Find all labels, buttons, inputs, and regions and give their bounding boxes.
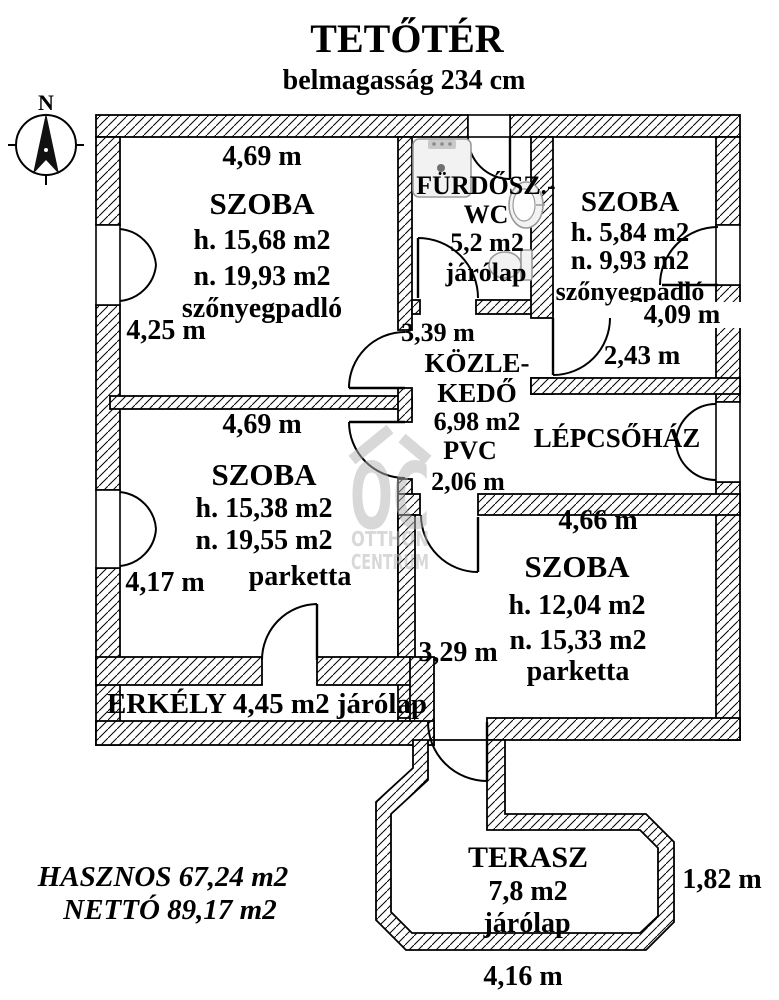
szoba4-dim-top: 4,66 m <box>558 505 637 536</box>
compass-north-label: N <box>38 90 54 115</box>
szoba1-dim-top: 4,69 m <box>222 141 301 172</box>
watermark-line1: OTTHON <box>351 527 429 551</box>
terasz-floor: járólap <box>482 908 570 939</box>
kozlekedo-name1: KÖZLE- <box>424 348 529 378</box>
szoba4-area-h: h. 12,04 m2 <box>509 590 646 621</box>
szoba2-dim-right: 4,09 m <box>644 299 721 329</box>
szoba3-name: SZOBA <box>211 457 317 492</box>
kozlekedo-floor: PVC <box>443 436 496 465</box>
szoba1-name: SZOBA <box>209 186 315 221</box>
szoba4-floor: parketta <box>527 656 630 687</box>
bathroom-floor: járólap <box>445 258 527 287</box>
watermark-logo: OC OTTHON CENTRUM <box>350 429 430 574</box>
bathroom-name2: WC <box>464 200 509 229</box>
kozlekedo-dim-bottom: 2,06 m <box>431 467 505 496</box>
window-szoba1 <box>96 225 120 305</box>
szoba1-area-n: n. 19,93 m2 <box>194 261 331 292</box>
terasz-area: 7,8 m2 <box>488 876 567 907</box>
summary-hasznos: HASZNOS 67,24 m2 <box>37 861 289 893</box>
terasz-dim-bottom: 4,16 m <box>483 961 562 992</box>
floor-plan: OC OTTHON CENTRUM N TETŐTÉR belmagasság … <box>0 0 779 1000</box>
szoba3-dim-top: 4,69 m <box>222 409 301 440</box>
szoba1-area-h: h. 15,68 m2 <box>194 225 331 256</box>
door-szoba2-right <box>716 225 740 285</box>
szoba3-area-h: h. 15,38 m2 <box>196 493 333 524</box>
bathroom-name1: FÜRDŐSZ.- <box>416 171 555 200</box>
szoba2-area-h: h. 5,84 m2 <box>571 217 690 247</box>
summary-netto: NETTÓ 89,17 m2 <box>62 893 276 926</box>
terasz-name: TERASZ <box>468 841 588 874</box>
window-szoba3 <box>96 490 120 568</box>
szoba3-area-n: n. 19,55 m2 <box>196 525 333 556</box>
szoba1-floor: szőnyegpadló <box>182 293 342 324</box>
szoba2-dim-bottom: 2,43 m <box>604 340 681 370</box>
door-bathroom-top <box>468 115 510 137</box>
page-subtitle: belmagasság 234 cm <box>283 65 526 96</box>
szoba3-floor: parketta <box>249 561 352 592</box>
szoba4-area-n: n. 15,33 m2 <box>510 625 647 656</box>
kozlekedo-name2: KEDŐ <box>437 377 517 408</box>
door-lepcsohaz <box>716 402 740 482</box>
kozlekedo-dim-top: 3,39 m <box>401 318 475 347</box>
kozlekedo-area: 6,98 m2 <box>434 407 521 436</box>
bathroom-area: 5,2 m2 <box>450 228 524 257</box>
szoba3-dim-left: 4,17 m <box>125 567 204 598</box>
szoba1-dim-left: 4,25 m <box>126 315 205 346</box>
erkely-label: ERKÉLY 4,45 m2 járólap <box>107 687 427 720</box>
terasz-dim-right: 1,82 m <box>682 864 761 895</box>
szoba2-name: SZOBA <box>581 186 679 218</box>
szoba4-name: SZOBA <box>524 549 630 584</box>
lepcsohaz-name: LÉPCSŐHÁZ <box>534 422 701 453</box>
watermark-line2: CENTRUM <box>351 550 429 574</box>
szoba2-area-n: n. 9,93 m2 <box>571 245 690 275</box>
page-title: TETŐTÉR <box>310 16 505 61</box>
szoba4-dim-left: 3,29 m <box>418 637 497 668</box>
